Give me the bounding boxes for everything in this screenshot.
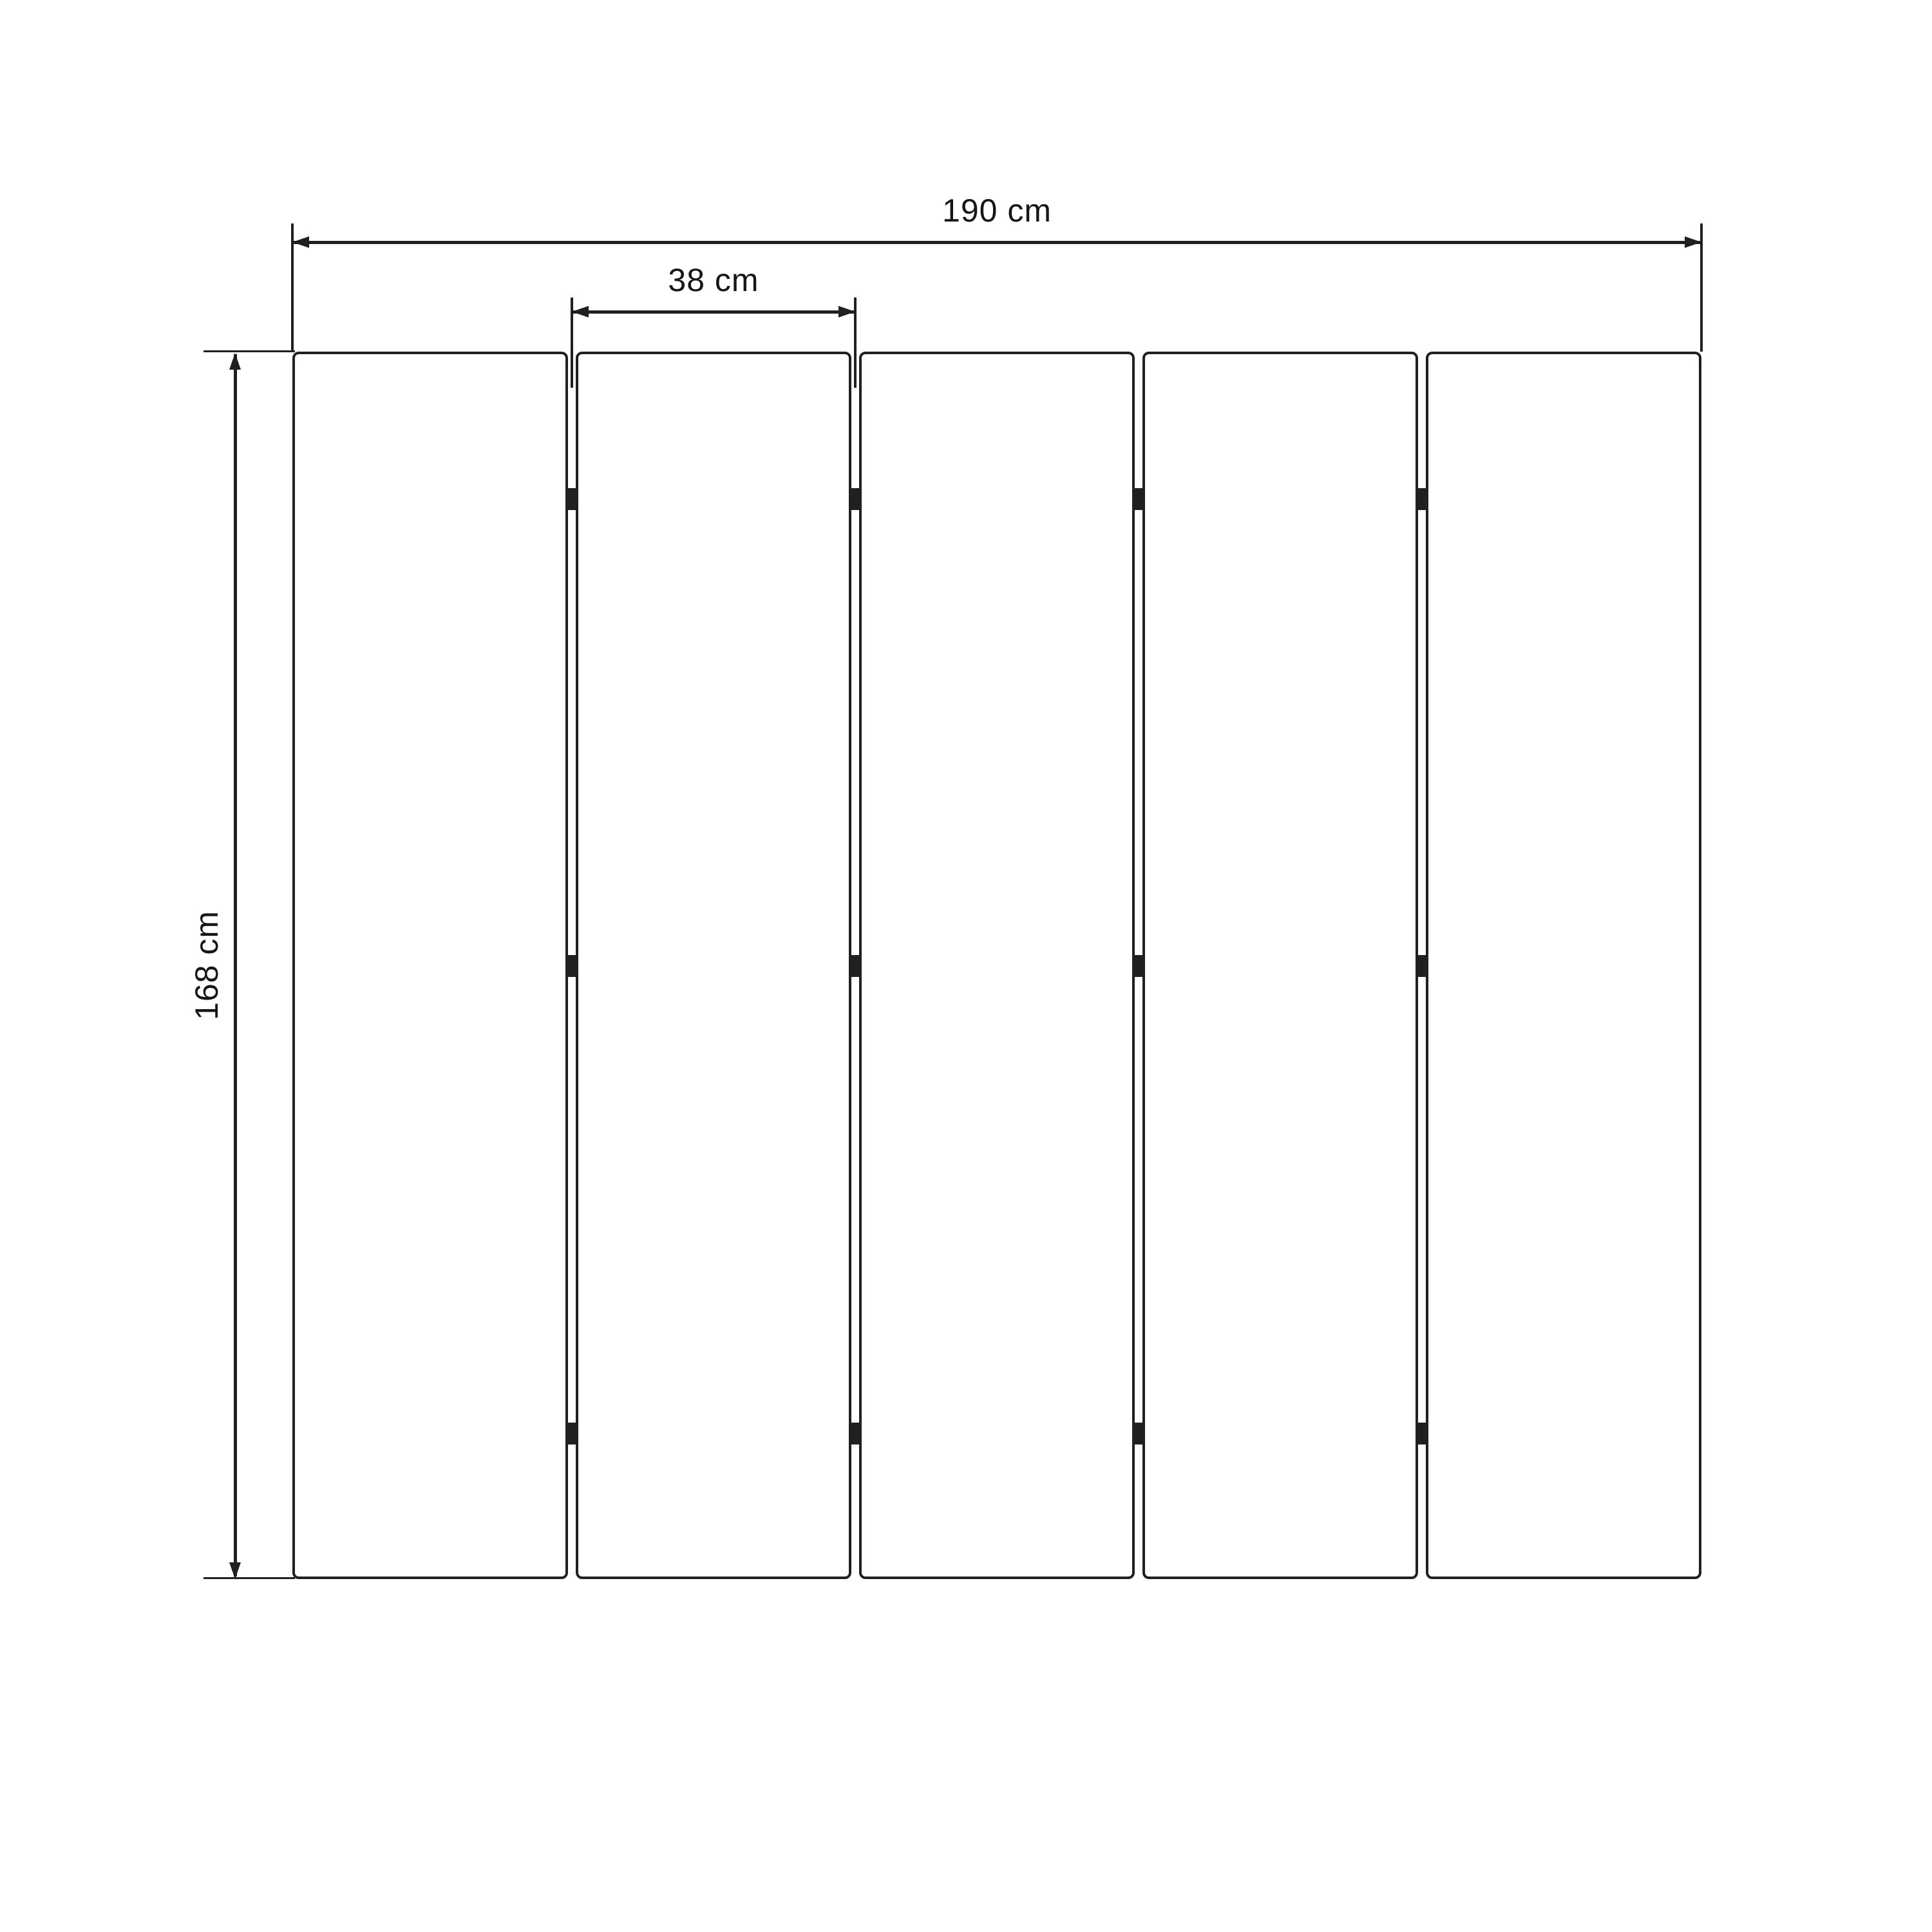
- hinge: [851, 1423, 860, 1444]
- hinge: [1417, 488, 1426, 510]
- hinge: [1417, 1423, 1426, 1444]
- extension-line: [204, 350, 295, 352]
- panel-3: [859, 352, 1135, 1579]
- panel-5: [1426, 352, 1701, 1579]
- hinge: [851, 488, 860, 510]
- hinge: [1134, 1423, 1143, 1444]
- hinge: [567, 488, 576, 510]
- dimension-diagram: 190 cm 38 cm 168 cm: [0, 0, 1932, 1932]
- total-width-dimension-line: [292, 241, 1701, 244]
- panel-2: [576, 352, 851, 1579]
- hinge: [1134, 488, 1143, 510]
- total-width-dimension-label: 190 cm: [942, 192, 1052, 229]
- extension-line: [204, 1577, 295, 1579]
- panel-1: [292, 352, 568, 1579]
- panel-width-dimension-line: [572, 310, 855, 314]
- extension-line: [854, 298, 857, 388]
- extension-line: [571, 298, 573, 388]
- hinge: [567, 955, 576, 977]
- extension-line: [291, 223, 294, 352]
- extension-line: [1700, 223, 1703, 352]
- arrow-up-icon: [229, 353, 241, 370]
- hinge: [1134, 955, 1143, 977]
- panel-width-dimension-label: 38 cm: [668, 261, 759, 299]
- arrow-right-icon: [838, 306, 855, 317]
- panel-4: [1142, 352, 1418, 1579]
- hinge: [851, 955, 860, 977]
- arrow-left-icon: [572, 306, 589, 317]
- arrow-left-icon: [292, 236, 309, 248]
- hinge: [567, 1423, 576, 1444]
- hinge: [1417, 955, 1426, 977]
- height-dimension-label: 168 cm: [188, 911, 225, 1020]
- height-dimension-line: [234, 354, 237, 1577]
- arrow-right-icon: [1685, 236, 1701, 248]
